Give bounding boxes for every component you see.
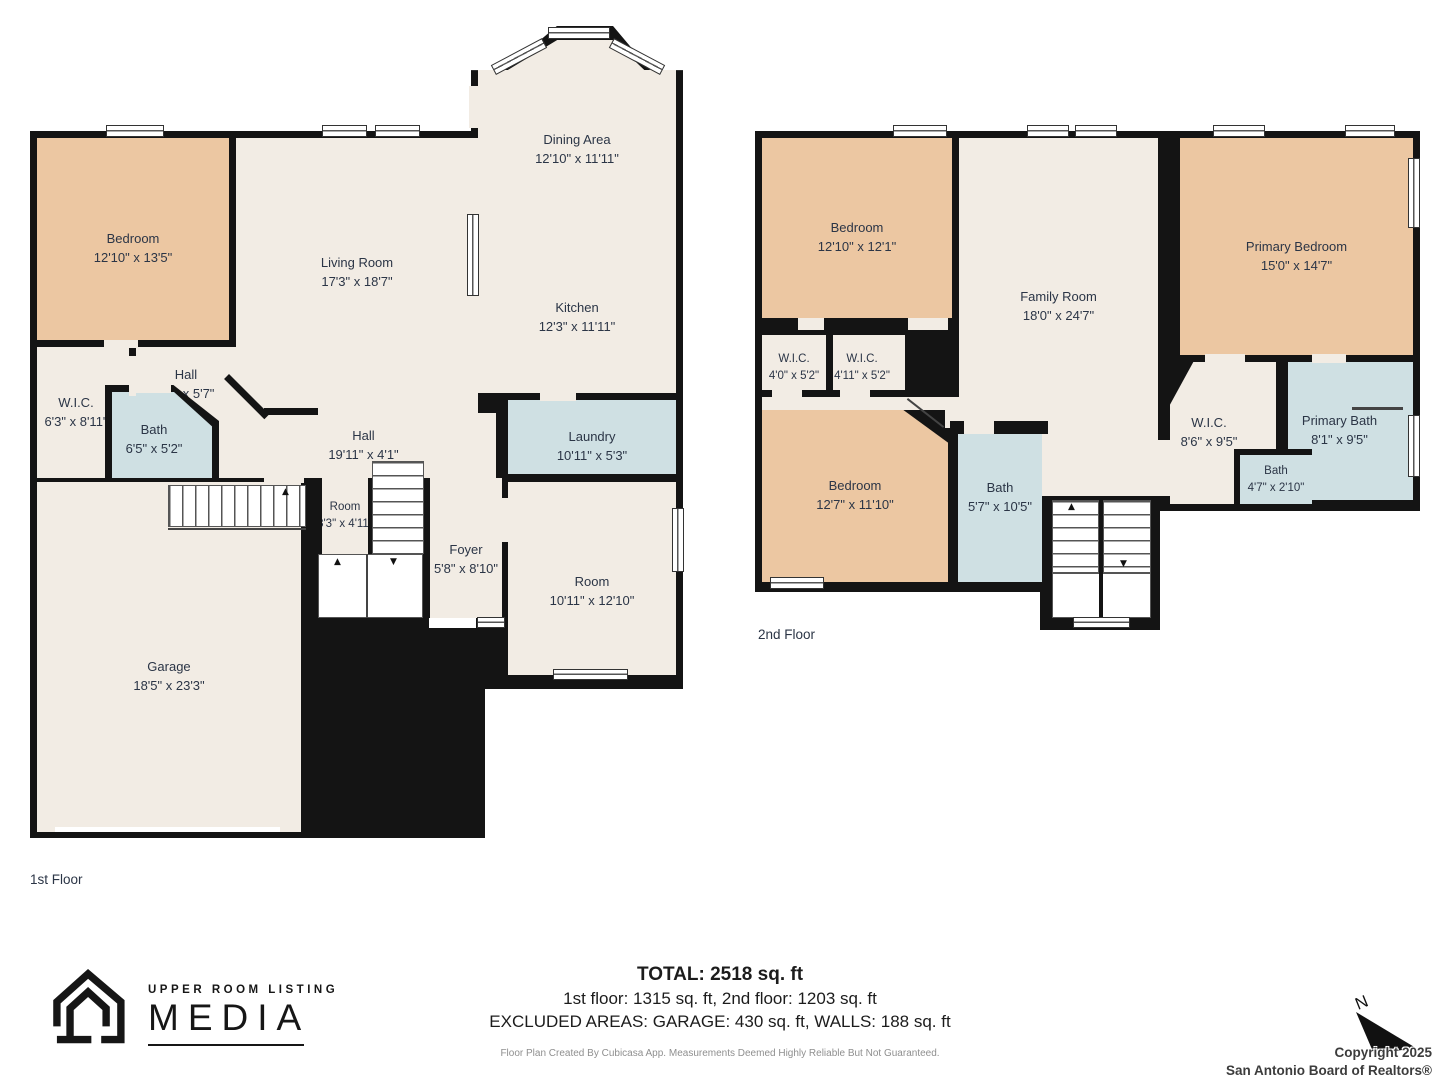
room-label: Foyer5'8" x 8'10" (434, 541, 498, 579)
stair-divider (366, 554, 368, 618)
room-label: W.I.C.4'11" x 5'2" (834, 351, 890, 384)
room-wic-a: W.I.C.4'0" x 5'2" (762, 335, 826, 390)
room-bedroom-1f: Bedroom12'10" x 13'5" (37, 138, 229, 340)
room-label: Bath6'5" x 5'2" (126, 421, 183, 459)
garage-door-line (55, 827, 280, 832)
company-logo: UPPER ROOM LISTING MEDIA (52, 962, 338, 1063)
copyright-line2: San Antonio Board of Realtors® (1226, 1062, 1432, 1080)
room-label: Primary Bath8'1" x 9'5" (1302, 412, 1377, 450)
window (1408, 158, 1420, 228)
bay-window (548, 27, 610, 39)
logo-line1: UPPER ROOM LISTING (148, 984, 338, 996)
door-opening (964, 421, 994, 434)
room-bedroom-2f-bottom: Bedroom12'7" x 11'10" (762, 410, 948, 582)
window (893, 125, 947, 137)
logo-underline (148, 1044, 304, 1046)
logo-house-icon (52, 962, 134, 1063)
room-label: Hall19'11" x 4'1" (328, 427, 398, 465)
room-laundry: Laundry10'11" x 5'3" (508, 400, 676, 474)
window (672, 508, 684, 572)
door-opening (772, 389, 802, 398)
room-wic-b: W.I.C.4'11" x 5'2" (833, 335, 905, 390)
room-bedroom-2f-top: Bedroom12'10" x 12'1" (762, 138, 952, 318)
door-opening (1205, 354, 1245, 363)
door-opening (840, 389, 870, 398)
room-dining-kitchen: Dining Area12'10" x 11'11" Kitchen12'3" … (478, 40, 676, 393)
door-opening (1312, 354, 1346, 363)
window (1345, 125, 1395, 137)
logo-line2: MEDIA (148, 997, 338, 1039)
room-label: Bedroom12'10" x 12'1" (818, 219, 897, 257)
room-label: Room10'11" x 12'10" (550, 573, 635, 611)
door-opening (540, 393, 576, 401)
stair-up-arrow-icon: ▲ (1068, 503, 1075, 512)
front-door-opening (429, 618, 476, 628)
room-label: W.I.C.8'6" x 9'5" (1181, 414, 1238, 452)
window (770, 577, 824, 589)
room-label-dining: Dining Area12'10" x 11'11" (478, 131, 676, 169)
wall (264, 408, 318, 415)
room-label: Garage18'5" x 23'3" (133, 658, 204, 696)
room-foyer: Foyer5'8" x 8'10" (430, 478, 502, 618)
room-bath-small: Bath4'7" x 2'10" (1234, 449, 1312, 504)
door-opening (500, 498, 513, 542)
room-small: Room3'3" x 4'11" (322, 478, 368, 554)
window (553, 669, 628, 680)
room-label: Room3'3" x 4'11" (322, 499, 368, 532)
room-primary-bedroom: Primary Bedroom15'0" x 14'7" (1180, 138, 1413, 355)
room-label: W.I.C.6'3" x 8'11" (44, 394, 107, 432)
window (375, 125, 420, 137)
window (1073, 617, 1130, 628)
door-opening (133, 385, 171, 393)
logo-text: UPPER ROOM LISTING MEDIA (148, 962, 338, 1046)
door-opening (798, 318, 824, 330)
room-label: Bath5'7" x 10'5" (968, 479, 1032, 517)
floor2-label: 2nd Floor (758, 627, 815, 642)
window (1213, 125, 1265, 137)
room-flex-1f: Room10'11" x 12'10" (508, 482, 676, 675)
staircase (1052, 500, 1099, 573)
floor1-label: 1st Floor (30, 872, 83, 887)
door-opening (1155, 440, 1179, 496)
stair-rail (168, 528, 306, 530)
door-opening (264, 469, 304, 483)
room-label-kitchen: Kitchen12'3" x 11'11" (478, 299, 676, 337)
door-opening (104, 340, 138, 348)
room-bath-2f: Bath5'7" x 10'5" (958, 434, 1042, 582)
room-label: Laundry10'11" x 5'3" (557, 428, 627, 466)
stair-up-arrow-icon: ▲ (334, 558, 341, 567)
copyright-line1: Copyright 2025 (1226, 1044, 1432, 1062)
room-label: Bedroom12'10" x 13'5" (94, 230, 173, 268)
window (477, 617, 505, 628)
window (1027, 125, 1069, 137)
stair-divider (1099, 500, 1103, 618)
window (106, 125, 164, 137)
window (1408, 415, 1420, 477)
room-label: Primary Bedroom15'0" x 14'7" (1246, 238, 1347, 276)
vanity-line (1352, 407, 1403, 410)
staircase (1103, 500, 1151, 573)
door-opening (469, 86, 483, 128)
room-label: W.I.C.4'0" x 5'2" (769, 351, 819, 384)
room-garage: Garage18'5" x 23'3" (37, 482, 301, 832)
window (467, 214, 479, 296)
compass-n-label: N (1352, 992, 1371, 1014)
room-label: Family Room18'0" x 24'7" (1020, 288, 1097, 326)
window (1075, 125, 1117, 137)
door-opening (908, 318, 948, 330)
room-label: Bath4'7" x 2'10" (1248, 463, 1305, 496)
stair-up-arrow-icon: ▲ (282, 488, 289, 497)
floor-plan-canvas: Bedroom12'10" x 13'5" Living Room17'3" x… (0, 0, 1440, 1080)
window (322, 125, 367, 137)
staircase (372, 461, 424, 554)
room-label: Living Room17'3" x 18'7" (321, 254, 393, 292)
stair-down-arrow-icon: ▼ (1120, 560, 1127, 569)
room-label: Bedroom12'7" x 11'10" (816, 477, 894, 515)
stair-down-arrow-icon: ▼ (390, 558, 397, 567)
copyright-text: Copyright 2025 San Antonio Board of Real… (1226, 1044, 1432, 1079)
